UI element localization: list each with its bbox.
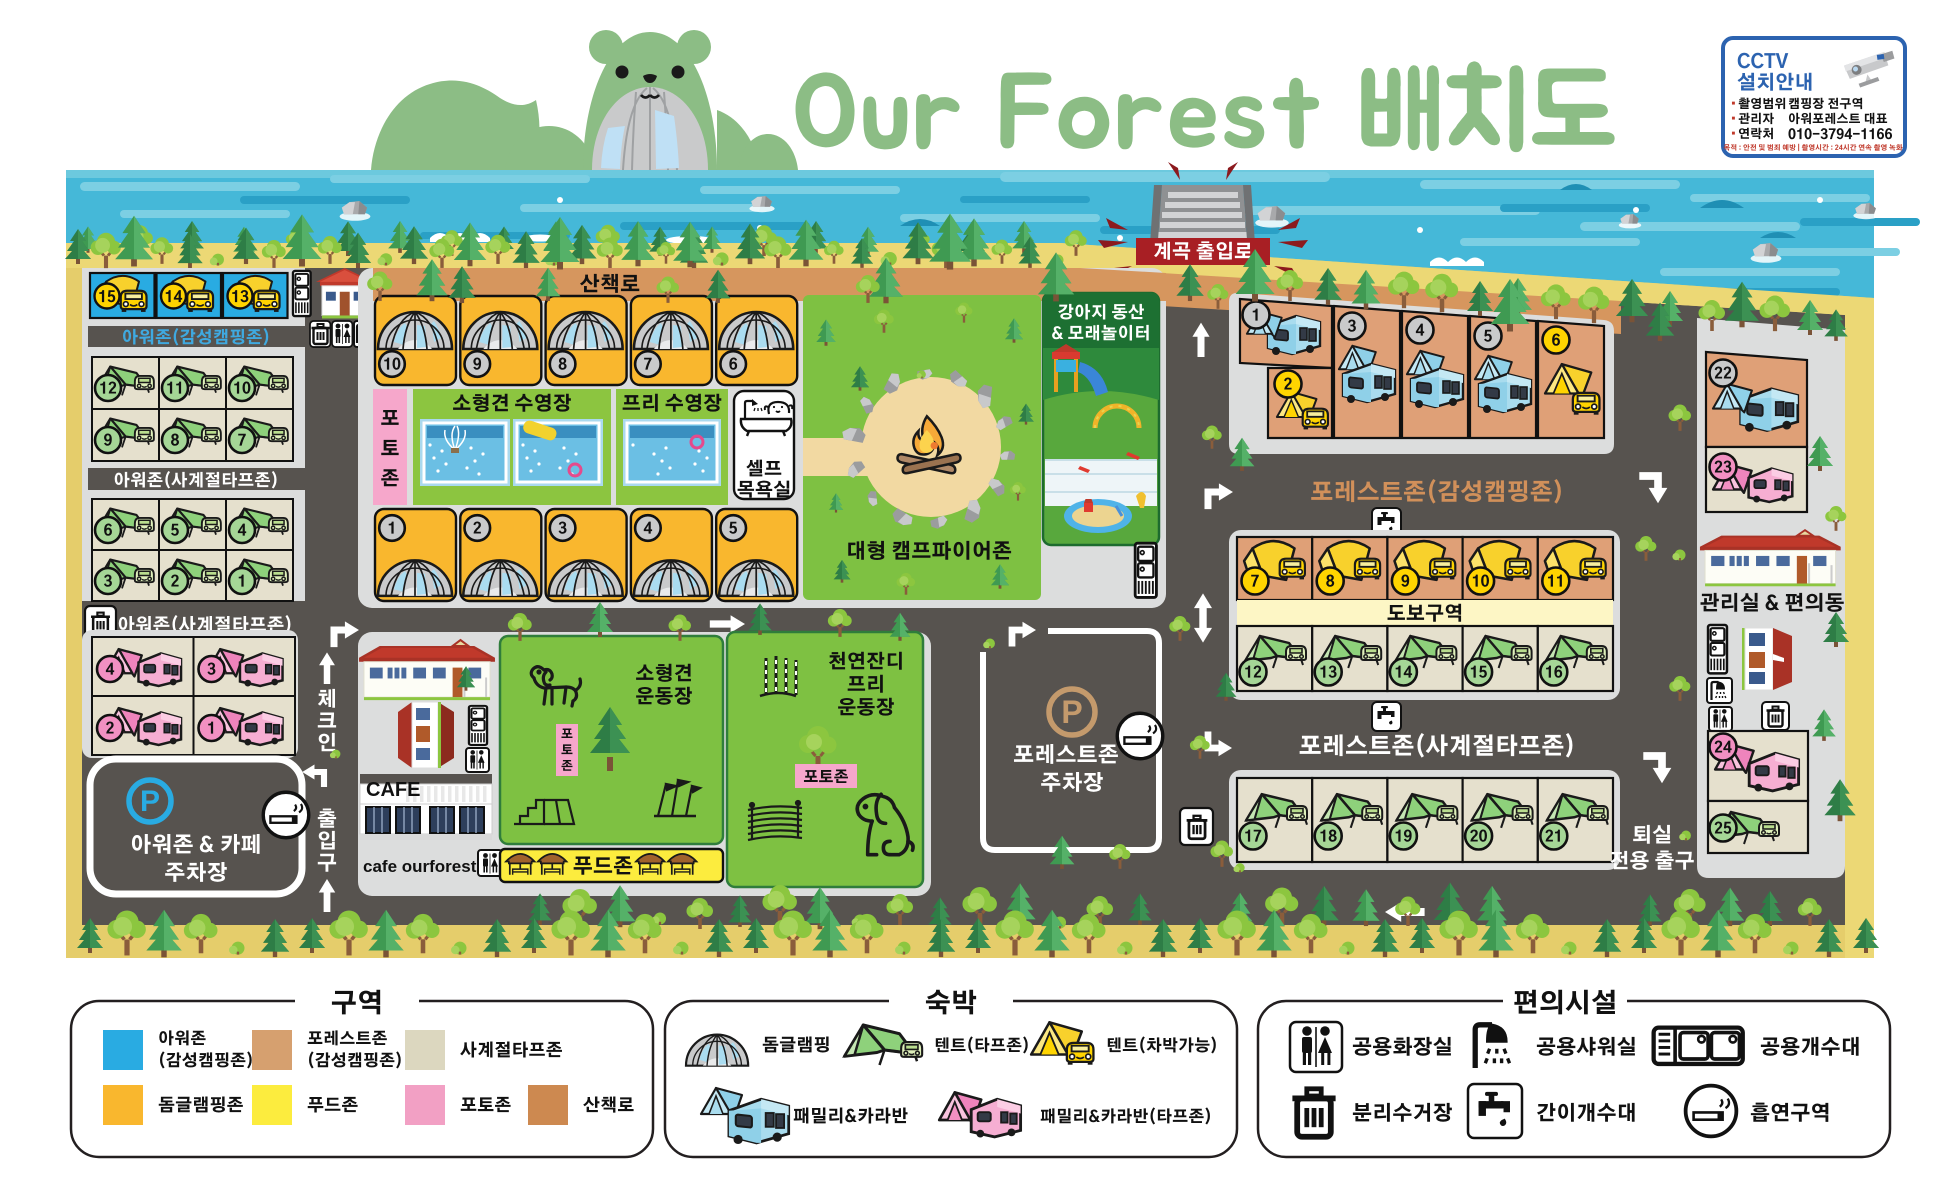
svg-text:P: P: [1061, 694, 1082, 730]
svg-text:P: P: [140, 785, 160, 818]
svg-text:CAFE: CAFE: [366, 779, 420, 801]
svg-text:cafe ourforest: cafe ourforest: [363, 857, 477, 876]
